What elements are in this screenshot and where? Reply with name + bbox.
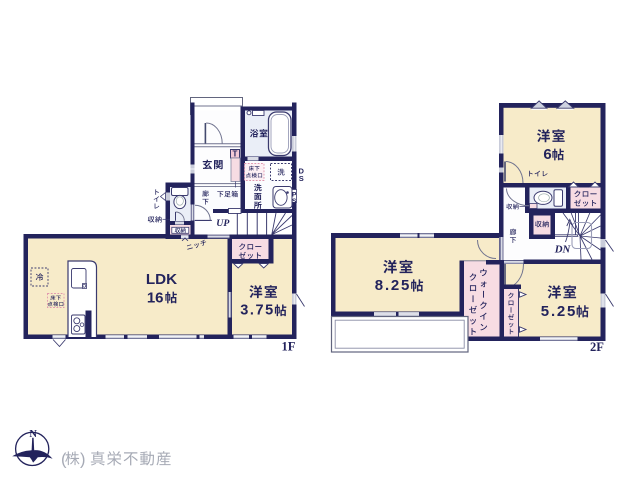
svg-text:UP: UP: [216, 218, 230, 229]
svg-text:5.25: 5.25: [541, 303, 577, 320]
svg-text:3.75: 3.75: [240, 303, 275, 319]
svg-text:6: 6: [543, 146, 551, 163]
svg-text:LDK: LDK: [146, 271, 177, 288]
svg-text:16: 16: [147, 289, 164, 306]
svg-text:8.25: 8.25: [375, 277, 411, 294]
svg-text:T: T: [233, 149, 238, 158]
svg-text:DN: DN: [554, 244, 572, 256]
svg-text:S: S: [299, 174, 304, 183]
svg-text:2F: 2F: [590, 340, 604, 354]
svg-text:S: S: [292, 198, 297, 205]
svg-text:): ): [80, 451, 86, 469]
svg-text:(: (: [61, 451, 67, 469]
svg-text:1F: 1F: [282, 340, 296, 354]
